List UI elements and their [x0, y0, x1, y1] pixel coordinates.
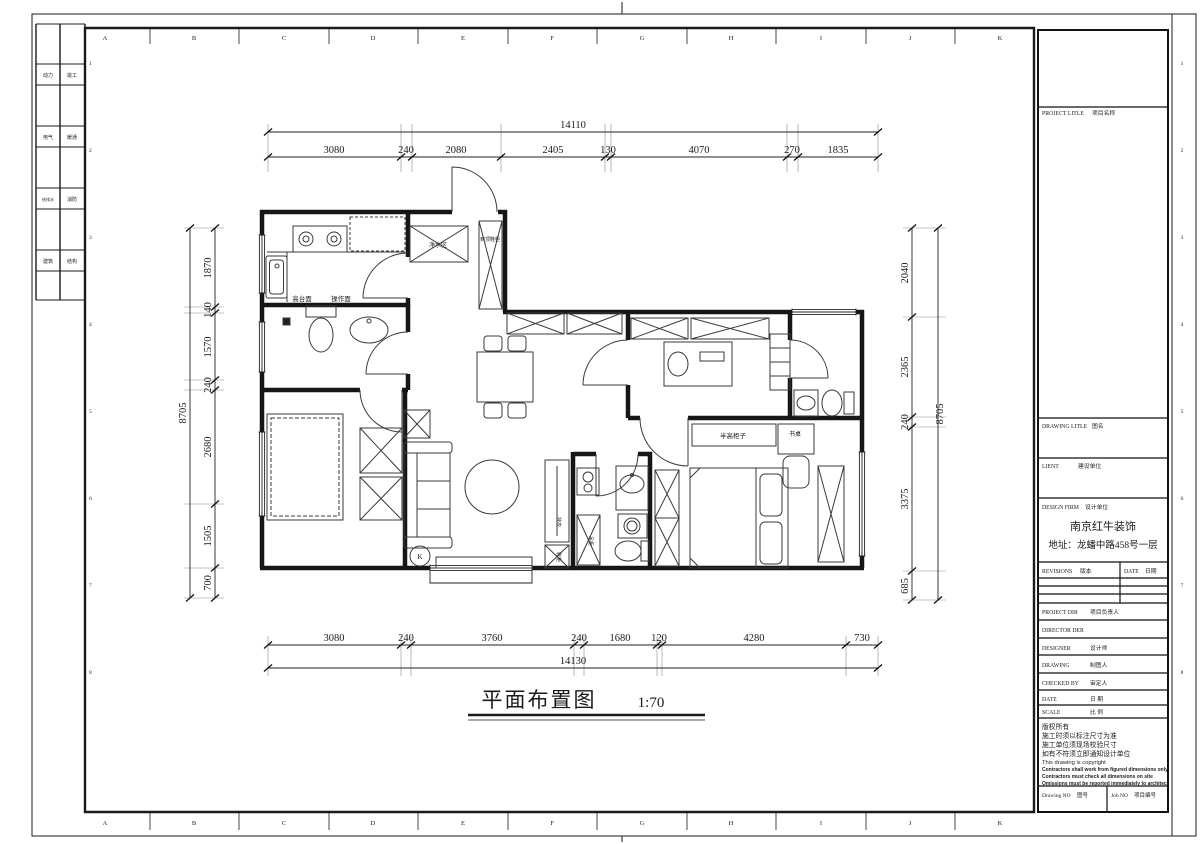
dim: 685 [900, 578, 911, 594]
tb-note: 施工单位须现场校验尺寸 [1042, 740, 1117, 749]
row-numbers-right: 1 2 3 4 5 6 7 8 [1181, 61, 1184, 676]
row-number: 2 [89, 148, 92, 154]
bath2-basin [616, 466, 648, 510]
row-number: 4 [89, 322, 92, 328]
grid-letter: A [103, 820, 108, 827]
dim: 240 [900, 414, 911, 430]
label-counter-work: 操作面 [331, 294, 351, 303]
grid-letter: E [461, 35, 465, 42]
bookshelf [770, 334, 790, 390]
tb-designer-en: DESIGNER [1042, 646, 1071, 652]
hanging-cabinet [545, 460, 569, 542]
label-entry-cabinet: 到顶鞋柜 [480, 236, 500, 243]
dim-total-top: 14110 [560, 120, 586, 131]
entry-door [452, 167, 497, 212]
dim: 240 [571, 633, 587, 644]
grid-letter: D [371, 35, 376, 42]
tb-drawing-title-en: DRAWING LITLE [1042, 424, 1088, 430]
dimensions: 14110 3080 240 2080 2405 130 4070 270 18… [178, 120, 946, 676]
row-number: 7 [1181, 583, 1184, 589]
tb-director-en: DIRECTOR DER [1042, 628, 1084, 634]
study-desk [664, 342, 732, 386]
window [859, 452, 866, 556]
drawing-title-text: 平面布置图 [482, 688, 597, 712]
tb-notes: 版权所有 施工时须以标注尺寸为准 施工单位须现场校验尺寸 如有不符须立即通知设计… [1042, 722, 1169, 787]
tb-firm-identity: 南京红牛装饰 地址：龙蟠中路458号一层 [1048, 519, 1157, 551]
row-number: 5 [1181, 409, 1184, 415]
plan-labels: 高台面 操作面 净水区 到顶鞋柜 半高柜子 书桌 挂衣 鞋柜 吊柜 K [292, 236, 801, 562]
grid-letters-top: A B C D E F G H I J K [103, 35, 1003, 42]
row-number: 7 [89, 583, 92, 589]
dim-total-right: 8705 [935, 404, 946, 425]
dim: 1505 [203, 526, 214, 547]
row-number: 1 [89, 61, 92, 67]
row-number: 3 [89, 235, 92, 241]
window [792, 309, 856, 316]
tb-drawing-title-zh: 图名 [1092, 422, 1104, 430]
tb-revisions-zh: 版本 [1080, 567, 1092, 575]
tb-scale-row-zh: 比 例 [1090, 708, 1103, 716]
tb-design-firm-zh: 设计单位 [1085, 503, 1108, 511]
tb-job-no-zh: 项目编号 [1134, 791, 1157, 799]
tb-checked-by-en: CHECKED BY [1042, 681, 1080, 687]
dim-total-bottom: 14130 [560, 656, 586, 667]
floor-drain [283, 318, 290, 325]
window [259, 235, 266, 293]
signoff-label: 消防 [67, 196, 77, 203]
grid-letter: G [640, 35, 645, 42]
tb-note: 版权所有 [1042, 722, 1069, 731]
signoff-label: 结构 [67, 258, 77, 265]
side-cabinet [404, 410, 430, 438]
dim: 120 [651, 633, 667, 644]
title-block: PROJECT LITLE 项目名称 DRAWING LITLE 图名 LIEN… [1038, 30, 1169, 812]
kitchen-door [363, 253, 408, 298]
label-desk: 书桌 [789, 430, 801, 438]
tb-date-row-en: DATE [1042, 697, 1057, 703]
dim: 3375 [900, 489, 911, 510]
bedroom-wardrobe [818, 466, 844, 562]
tb-checked-by-zh: 审定人 [1090, 679, 1108, 687]
dim: 3080 [324, 633, 345, 644]
dim: 2680 [203, 437, 214, 458]
grid-letter: F [550, 35, 554, 42]
doors [360, 167, 828, 496]
dining-set [477, 336, 533, 418]
tb-firm-name: 南京红牛装饰 [1070, 519, 1136, 533]
label-k: K [417, 553, 422, 561]
washing-machine [618, 514, 647, 538]
dim: 4070 [689, 145, 710, 156]
kitchen-cabinet [350, 217, 405, 251]
grid-letter: C [282, 35, 286, 42]
stove-icon [293, 226, 347, 252]
tb-note: 施工时须以标注尺寸为准 [1042, 731, 1117, 740]
floor-plan: 高台面 操作面 净水区 到顶鞋柜 半高柜子 书桌 挂衣 鞋柜 吊柜 K [259, 167, 866, 583]
master-bed [690, 468, 788, 568]
tatami-bed [267, 414, 343, 520]
tb-project-title-en: PROJECT LITLE [1042, 111, 1084, 117]
tb-note: This drawing is copyright [1042, 760, 1106, 766]
dim: 130 [600, 145, 616, 156]
tb-drawing-by-zh: 制图人 [1090, 661, 1108, 669]
grid-letter: D [371, 820, 376, 827]
dim: 1870 [203, 258, 214, 279]
row-number: 3 [1181, 235, 1184, 241]
signoff-label: 给排水 [42, 196, 54, 202]
signoff-label: 竣工 [67, 72, 77, 79]
dim-labels: 14110 3080 240 2080 2405 130 4070 270 18… [178, 120, 946, 667]
grid-letter: I [820, 35, 822, 42]
grid-letter: I [820, 820, 822, 827]
row-number: 2 [1181, 148, 1184, 154]
signoff-strip: 动力 竣工 电气 暖通 给排水 消防 建筑 结构 [36, 24, 85, 300]
grid-letter: J [909, 35, 912, 42]
tb-project-title-zh: 项目名称 [1092, 109, 1115, 117]
tb-designer-zh: 设计师 [1090, 644, 1108, 652]
grid-letter: H [729, 35, 734, 42]
bath1-door [366, 332, 408, 374]
grid-letter: F [550, 820, 554, 827]
dim: 1835 [828, 145, 849, 156]
tb-date-row-zh: 日 期 [1090, 696, 1103, 703]
label-water-area: 净水区 [429, 241, 447, 249]
drawing-scale: 1:70 [638, 695, 665, 711]
tb-note: 如有不符须立即通知设计单位 [1042, 749, 1131, 758]
grid-letter: K [998, 35, 1003, 42]
toilet-icon [306, 306, 336, 352]
grid-letter: B [192, 820, 197, 827]
grid-letter: G [640, 820, 645, 827]
tb-date-col-zh: 日期 [1145, 568, 1157, 575]
grid-letter: H [729, 820, 734, 827]
dim: 240 [398, 633, 414, 644]
dim: 2365 [900, 357, 911, 378]
grid-ruler: A B C D E F G H I J K A B C D E F G H I … [89, 28, 1184, 830]
dim: 3760 [482, 633, 503, 644]
tb-revisions-en: REVISIONS [1042, 569, 1072, 575]
grid-letter: A [103, 35, 108, 42]
window [430, 565, 532, 583]
master-door [640, 418, 688, 466]
dim: 2080 [446, 145, 467, 156]
signoff-label: 动力 [43, 72, 53, 79]
tb-client-en: LIENT [1042, 464, 1059, 470]
grid-letter: B [192, 35, 197, 42]
row-number: 8 [89, 670, 92, 676]
label-shoe-cabinet: 鞋柜 [555, 552, 562, 562]
tb-note-en: Contractors must check all dimensions on… [1042, 774, 1153, 780]
dim: 1570 [203, 337, 214, 358]
dim: 270 [784, 145, 800, 156]
tb-note-en: Omissions must be reported immediately t… [1042, 781, 1169, 787]
tb-firm-address: 地址：龙蟠中路458号一层 [1048, 539, 1157, 551]
row-number: 5 [89, 409, 92, 415]
small-washbasin-icon [794, 390, 818, 416]
toilet-room-door [790, 340, 828, 378]
walls [260, 210, 864, 568]
study-door [583, 340, 628, 385]
label-counter-high: 高台面 [292, 294, 312, 303]
dim: 140 [203, 302, 214, 318]
small-toilet-icon [822, 390, 854, 416]
entry-shoe-cabinet [479, 221, 502, 309]
furniture [266, 217, 854, 568]
grid-letters-bottom: A B C D E F G H I J K [103, 820, 1003, 827]
row-number: 6 [89, 496, 92, 502]
row-numbers-left: 1 2 3 4 5 6 7 8 [89, 61, 92, 676]
dim: 4280 [744, 633, 765, 644]
tb-drawing-no-en: Drawing NO [1042, 793, 1071, 799]
dim: 3080 [324, 145, 345, 156]
wardrobe [360, 428, 402, 520]
label-half-cabinet: 半高柜子 [720, 431, 747, 440]
tb-job-no-en: Job NO [1111, 793, 1128, 799]
bedroom2-door [360, 390, 402, 432]
dim: 240 [398, 145, 414, 156]
sofa [404, 442, 452, 548]
tb-project-dir-en: PROJECT DIR [1042, 610, 1078, 616]
row-number: 4 [1181, 322, 1184, 328]
dim: 2040 [900, 263, 911, 284]
tb-drawing-by-en: DRAWING [1042, 663, 1070, 669]
signoff-label: 建筑 [43, 258, 53, 265]
tb-design-firm-en: DESIGN FIRM [1042, 505, 1079, 511]
signoff-label: 电气 [43, 134, 53, 141]
tb-date-col-en: DATE [1124, 569, 1139, 575]
cad-sheet: A B C D E F G H I J K A B C D E F G H I … [0, 0, 1200, 844]
tb-drawing-no-zh: 图号 [1077, 791, 1089, 799]
grid-letter: E [461, 820, 465, 827]
bath2-toilet [615, 541, 649, 561]
row-number: 1 [1181, 61, 1184, 67]
tb-scale-row-en: SCALE [1042, 710, 1061, 716]
round-rug [465, 460, 519, 514]
label-hanging: 挂衣 [555, 517, 562, 527]
signoff-label: 暖通 [67, 134, 77, 141]
row-number: 8 [1181, 670, 1184, 676]
window [259, 432, 266, 516]
corridor-closets [507, 313, 769, 339]
drawing-title: 平面布置图 1:70 [468, 688, 705, 720]
dim: 2405 [543, 145, 564, 156]
grid-letter: J [909, 820, 912, 827]
tb-note-en: Contractors shall work from figured dime… [1042, 767, 1168, 773]
grid-letter: K [998, 820, 1003, 827]
grid-letter: C [282, 820, 286, 827]
washbasin-icon [350, 317, 388, 343]
dim: 240 [203, 377, 214, 393]
dim: 730 [854, 633, 870, 644]
window [259, 322, 266, 372]
master-wardrobe [655, 470, 679, 566]
row-number: 6 [1181, 496, 1184, 502]
tb-project-dir-zh: 项目负责人 [1090, 608, 1119, 616]
dim: 1680 [610, 633, 631, 644]
tb-client-zh: 建设单位 [1078, 462, 1101, 470]
windows [259, 235, 866, 583]
label-cabinet: 吊柜 [587, 536, 594, 546]
dim-total-left: 8705 [178, 403, 189, 424]
dim: 700 [203, 575, 214, 591]
